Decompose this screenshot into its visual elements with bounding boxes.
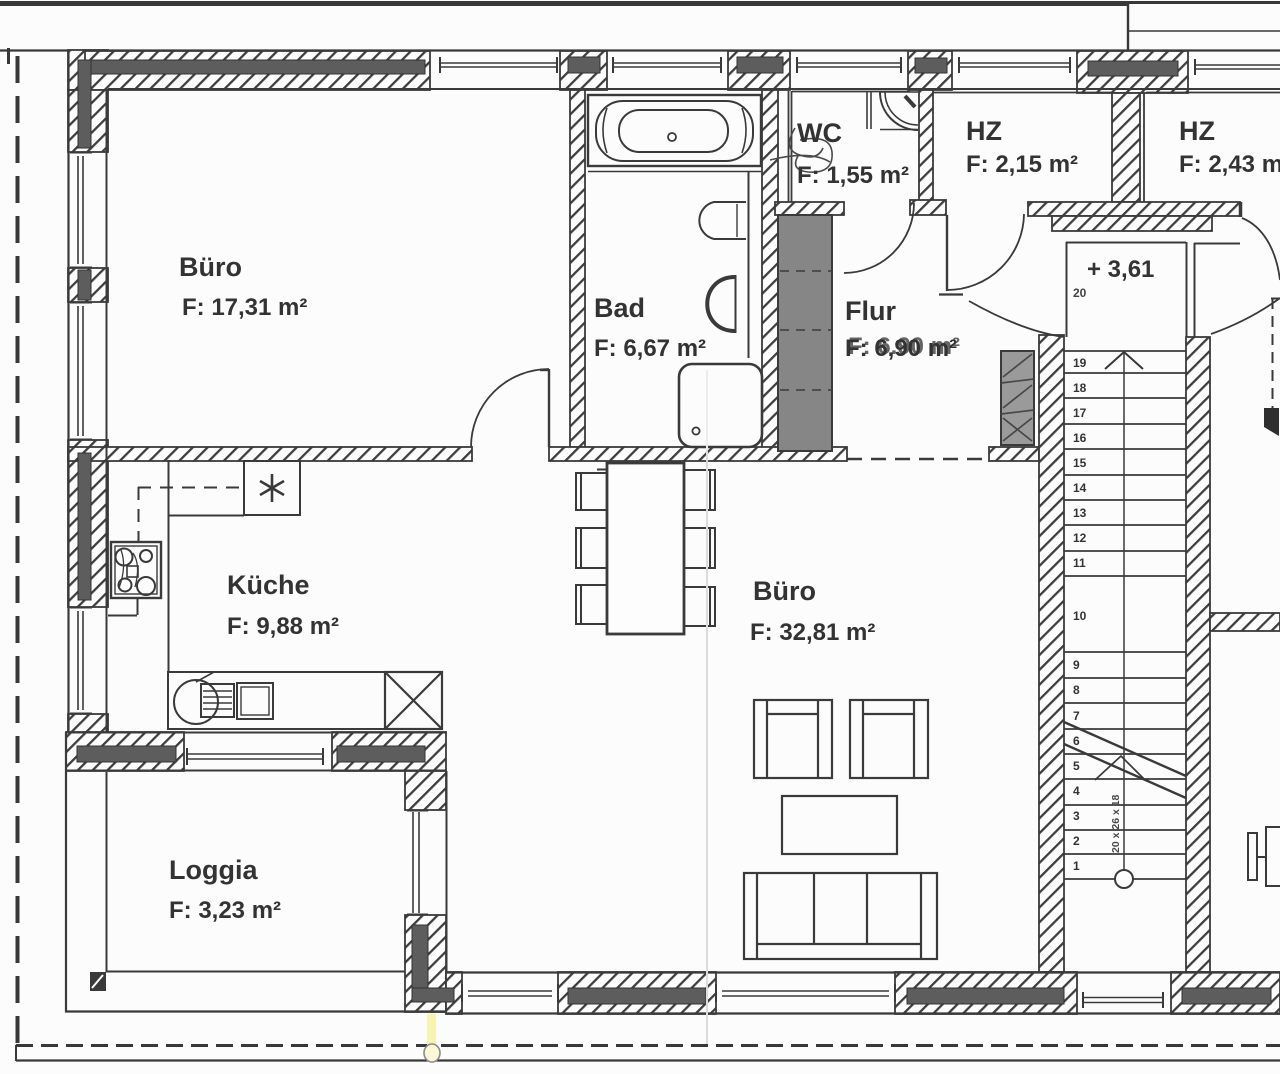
svg-text:F: 9,88 m²: F: 9,88 m² [227,613,339,640]
svg-text:5: 5 [1073,759,1080,773]
svg-text:Bad: Bad [594,293,645,323]
svg-text:Büro: Büro [179,252,242,282]
svg-text:3: 3 [1073,809,1080,823]
svg-text:HZ: HZ [966,116,1002,146]
svg-text:Küche: Küche [227,570,310,600]
svg-text:1: 1 [1073,859,1080,873]
svg-text:+ 3,61: + 3,61 [1087,256,1154,283]
svg-text:20 x 26 x 18: 20 x 26 x 18 [1110,794,1122,853]
svg-text:7: 7 [1073,709,1080,723]
svg-text:8: 8 [1073,683,1080,697]
svg-text:F: 17,31 m²: F: 17,31 m² [182,294,307,321]
svg-text:HZ: HZ [1179,116,1215,146]
svg-text:F: 6,67 m²: F: 6,67 m² [594,335,706,362]
svg-text:16: 16 [1073,431,1087,445]
svg-text:2: 2 [1073,834,1080,848]
svg-text:13: 13 [1073,506,1087,520]
svg-text:6: 6 [1073,734,1080,748]
svg-text:Flur: Flur [845,296,896,326]
svg-text:WC: WC [797,118,842,148]
svg-text:F: 3,23 m²: F: 3,23 m² [169,897,281,924]
svg-text:14: 14 [1073,481,1087,495]
svg-text:18: 18 [1073,381,1087,395]
svg-text:F: 2,15 m²: F: 2,15 m² [966,151,1078,178]
svg-text:11: 11 [1073,556,1086,570]
svg-text:F: 1,55 m²: F: 1,55 m² [797,162,909,189]
svg-text:12: 12 [1073,531,1087,545]
svg-text:9: 9 [1073,658,1080,672]
svg-text:15: 15 [1073,456,1087,470]
svg-text:Loggia: Loggia [169,855,258,885]
svg-text:20: 20 [1073,286,1087,300]
svg-text:17: 17 [1073,406,1087,420]
svg-text:F: 2,43 m²: F: 2,43 m² [1179,151,1280,178]
svg-text:19: 19 [1073,356,1087,370]
svg-text:10: 10 [1073,609,1087,623]
svg-text:F: 6.90 m²: F: 6.90 m² [848,333,960,360]
svg-text:Büro: Büro [753,576,816,606]
svg-text:4: 4 [1073,784,1080,798]
svg-text:F: 32,81 m²: F: 32,81 m² [750,619,875,646]
